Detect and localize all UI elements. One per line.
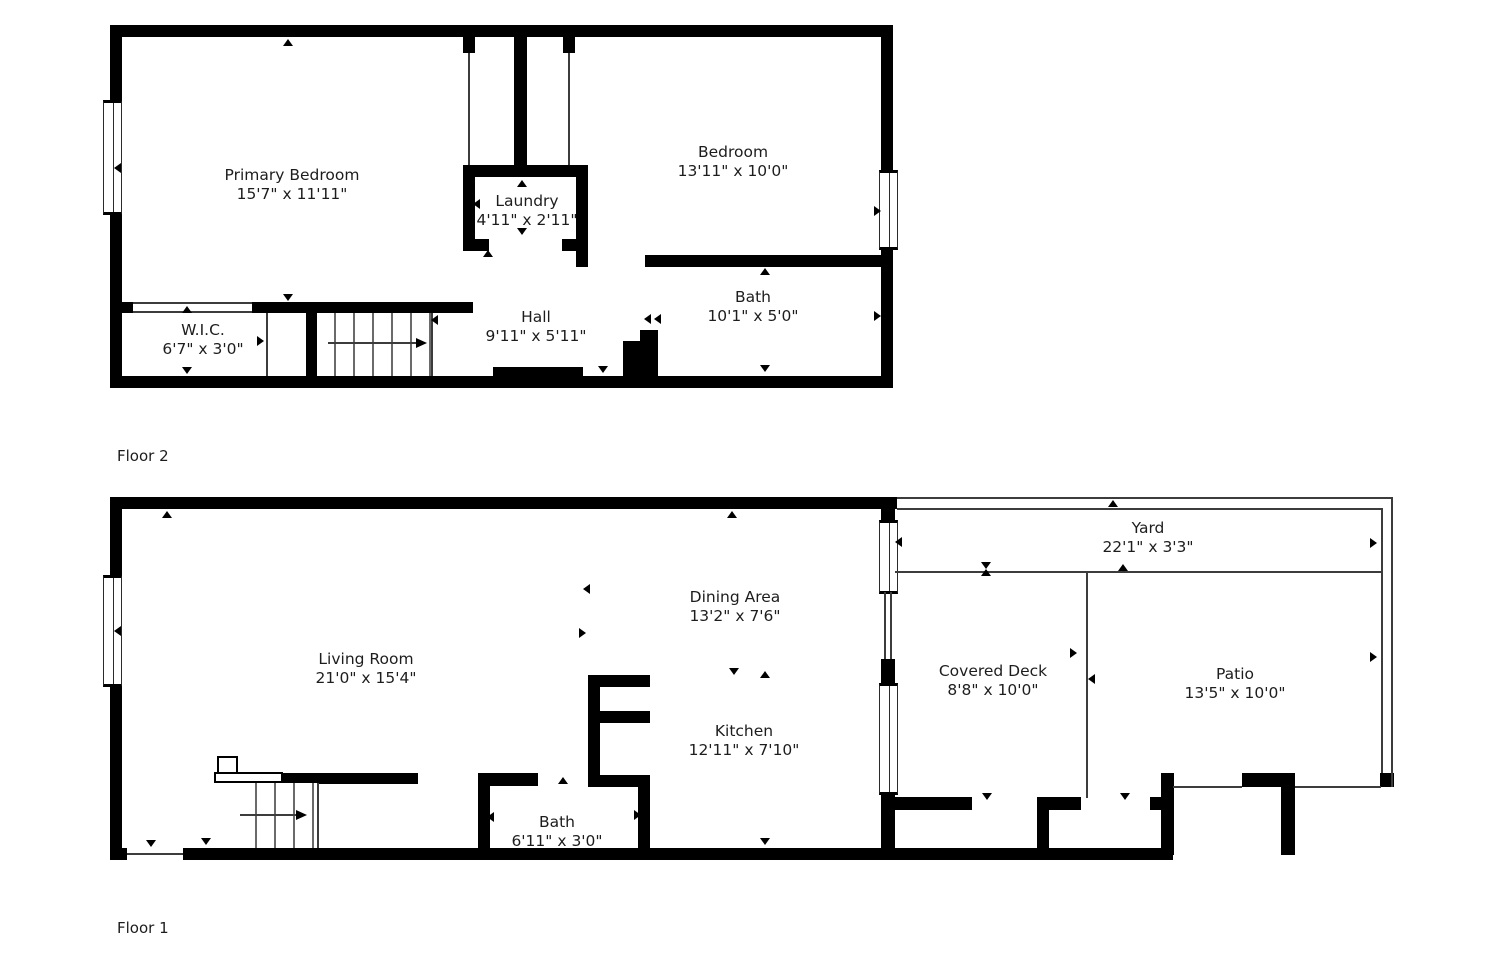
room-dims: 9'11" x 5'11" (486, 327, 587, 346)
opening-line (133, 311, 252, 313)
room-name: Kitchen (715, 722, 773, 741)
room-dims: 6'7" x 3'0" (162, 340, 243, 359)
direction-arrow (874, 206, 881, 216)
direction-arrow (729, 668, 739, 675)
room-dims: 12'11" x 7'10" (689, 741, 800, 760)
bath-wall-top (645, 255, 893, 267)
direction-arrow (1070, 648, 1077, 658)
direction-arrow (1120, 793, 1130, 800)
direction-arrow (182, 367, 192, 374)
stairs-direction-line (240, 814, 300, 816)
direction-arrow (483, 250, 493, 257)
room-name: Bath (735, 288, 771, 307)
stair-wall-top (252, 302, 473, 313)
direction-arrow (874, 311, 881, 321)
window (879, 683, 898, 795)
exterior-wall-top (110, 25, 893, 37)
room-dims: 15'7" x 11'11" (237, 185, 348, 204)
exterior-wall-right (881, 497, 895, 520)
direction-arrow (577, 199, 584, 209)
direction-arrow (1370, 538, 1377, 548)
room-name: Yard (1132, 519, 1165, 538)
room-name: Primary Bedroom (225, 166, 360, 185)
room-label-laundry: Laundry 4'11" x 2'11" (477, 192, 578, 230)
direction-arrow (431, 315, 438, 325)
direction-arrow (583, 584, 590, 594)
room-dims: 13'11" x 10'0" (678, 162, 789, 181)
direction-arrow (981, 562, 991, 569)
room-label-bath-2: Bath 10'1" x 5'0" (707, 288, 798, 326)
opening-line (127, 853, 183, 855)
exterior-wall-top (110, 497, 897, 509)
room-dims: 22'1" x 3'3" (1102, 538, 1193, 557)
room-dims: 6'11" x 3'0" (511, 832, 602, 851)
direction-arrow (112, 336, 119, 346)
direction-arrow (895, 537, 902, 547)
direction-arrow (644, 314, 651, 324)
bath-fixture (623, 341, 640, 383)
room-label-dining-area: Dining Area 13'2" x 7'6" (689, 588, 780, 626)
stairs-direction-arrow (296, 810, 307, 820)
hall-fixture (493, 367, 583, 379)
exterior-wall-right (881, 659, 895, 683)
bath-fixture (640, 330, 658, 383)
sliding-door-line (884, 592, 886, 659)
wic-door-line (266, 313, 268, 376)
direction-arrow (146, 840, 156, 847)
deck-wall (1049, 797, 1081, 810)
patio-boundary-line (1295, 786, 1381, 788)
direction-arrow (982, 793, 992, 800)
sliding-door-line (890, 592, 892, 659)
direction-arrow (760, 838, 770, 845)
deck-patio-divider-line (1086, 571, 1088, 798)
floor-2-caption: Floor 2 (117, 447, 169, 465)
direction-arrow (579, 628, 586, 638)
room-dims: 13'5" x 10'0" (1185, 684, 1286, 703)
room-label-wic: W.I.C. 6'7" x 3'0" (162, 321, 243, 359)
room-name: Bedroom (698, 143, 768, 162)
bedroom-divider-wall (514, 33, 527, 173)
room-dims: 4'11" x 2'11" (477, 211, 578, 230)
yard-deck-divider-line (895, 571, 1381, 573)
direction-arrow (1370, 652, 1377, 662)
direction-arrow (1088, 674, 1095, 684)
direction-arrow (654, 314, 661, 324)
yard-boundary-line (1391, 497, 1393, 787)
direction-arrow (1108, 500, 1118, 507)
direction-arrow (598, 366, 608, 373)
bath-wall-top (597, 775, 650, 787)
direction-arrow (981, 569, 991, 576)
room-label-patio: Patio 13'5" x 10'0" (1185, 665, 1286, 703)
room-label-primary-bedroom: Primary Bedroom 15'7" x 11'11" (225, 166, 360, 204)
room-name: Laundry (495, 192, 558, 211)
patio-wall (1242, 773, 1295, 787)
floor-plan-canvas: Primary Bedroom 15'7" x 11'11" Laundry 4… (0, 0, 1500, 974)
stairs-direction-line (328, 342, 420, 344)
direction-arrow (760, 268, 770, 275)
direction-arrow (760, 671, 770, 678)
stairs-edge-line (317, 783, 319, 848)
room-label-living-room: Living Room 21'0" x 15'4" (316, 650, 417, 688)
room-dims: 8'8" x 10'0" (947, 681, 1038, 700)
wic-wall-top (110, 302, 133, 313)
room-label-bath-1: Bath 6'11" x 3'0" (511, 813, 602, 851)
yard-boundary-line (1381, 508, 1383, 773)
room-label-bedroom: Bedroom 13'11" x 10'0" (678, 143, 789, 181)
direction-arrow (283, 39, 293, 46)
direction-arrow (1118, 564, 1128, 571)
room-dims: 10'1" x 5'0" (707, 307, 798, 326)
direction-arrow (201, 838, 211, 845)
room-name: Dining Area (690, 588, 781, 607)
room-label-hall: Hall 9'11" x 5'11" (486, 308, 587, 346)
direction-arrow (727, 511, 737, 518)
direction-arrow (114, 626, 121, 636)
yard-boundary-line (897, 508, 1381, 510)
room-label-yard: Yard 22'1" x 3'3" (1102, 519, 1193, 557)
direction-arrow (558, 777, 568, 784)
room-name: Bath (539, 813, 575, 832)
direction-arrow (517, 180, 527, 187)
kitchen-wall (597, 711, 650, 723)
hall-wall (576, 251, 588, 267)
direction-arrow (760, 365, 770, 372)
room-name: Patio (1216, 665, 1254, 684)
stairs (317, 313, 431, 376)
deck-wall (1037, 797, 1049, 855)
room-label-covered-deck: Covered Deck 8'8" x 10'0" (939, 662, 1047, 700)
room-dims: 13'2" x 7'6" (689, 607, 780, 626)
direction-arrow (634, 810, 641, 820)
wall-stub (463, 35, 475, 53)
room-name: Living Room (318, 650, 413, 669)
direction-arrow (114, 163, 121, 173)
closet-line (468, 53, 470, 165)
opening-line (133, 302, 252, 304)
wall-stub (563, 35, 575, 53)
room-label-kitchen: Kitchen 12'11" x 7'10" (689, 722, 800, 760)
floor-1-caption: Floor 1 (117, 919, 169, 937)
direction-arrow (487, 812, 494, 822)
room-name: Hall (521, 308, 551, 327)
stairs-handrail (214, 772, 283, 783)
deck-wall (893, 797, 972, 810)
laundry-wall-top (463, 165, 588, 177)
room-name: W.I.C. (181, 321, 225, 340)
direction-arrow (162, 511, 172, 518)
kitchen-wall (588, 675, 600, 787)
window (879, 170, 898, 250)
direction-arrow (283, 294, 293, 301)
laundry-wall-bottom (562, 239, 588, 251)
stairs-direction-arrow (416, 338, 427, 348)
room-dims: 21'0" x 15'4" (316, 669, 417, 688)
wic-stair-divider-wall (306, 302, 317, 383)
exterior-wall-bottom (110, 848, 1173, 860)
closet-line (568, 53, 570, 165)
direction-arrow (182, 306, 192, 313)
window (879, 520, 898, 594)
yard-boundary-line (897, 497, 1393, 499)
direction-arrow (257, 336, 264, 346)
room-name: Covered Deck (939, 662, 1047, 681)
patio-wall (1281, 787, 1295, 855)
patio-boundary-line (1173, 786, 1242, 788)
window (103, 100, 122, 215)
